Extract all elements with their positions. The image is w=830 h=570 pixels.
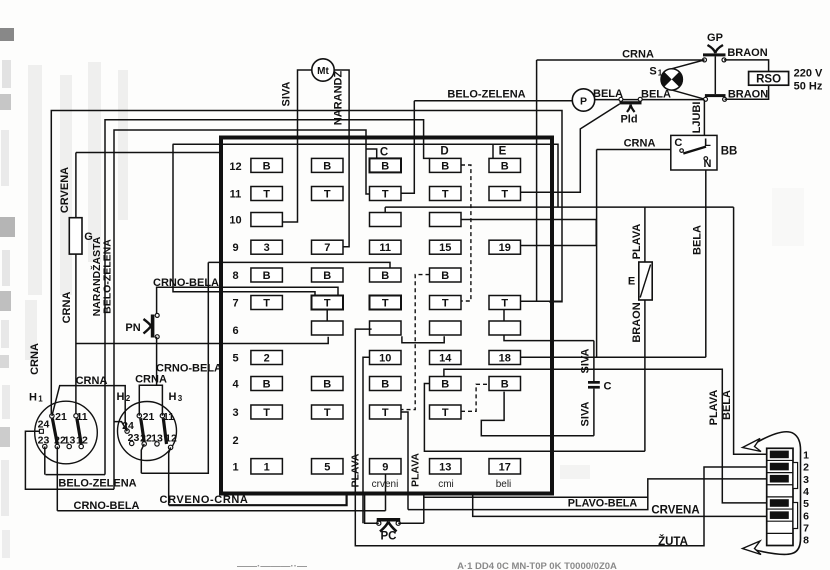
svg-text:T: T [324, 298, 331, 310]
svg-text:T: T [382, 407, 389, 419]
svg-text:T: T [501, 298, 508, 310]
svg-text:2: 2 [232, 435, 238, 447]
svg-text:C: C [380, 147, 388, 159]
svg-text:H: H [29, 392, 37, 404]
svg-text:23: 23 [128, 432, 140, 444]
svg-text:PLAVA: PLAVA [409, 453, 421, 487]
svg-text:CRNA: CRNA [622, 49, 654, 61]
svg-text:A·1 DD4 0C MN-T0P 0K T0000/0Z0: A·1 DD4 0C MN-T0P 0K T0000/0Z0A [457, 561, 617, 570]
svg-text:6: 6 [232, 325, 238, 337]
svg-text:21: 21 [143, 411, 155, 423]
svg-text:B: B [323, 160, 331, 172]
svg-text:PC: PC [381, 531, 397, 543]
svg-text:B: B [381, 379, 389, 391]
svg-text:T: T [324, 407, 331, 419]
svg-text:LJUBI: LJUBI [691, 102, 703, 134]
svg-text:T: T [442, 189, 449, 201]
svg-text:BELO-ZELENA: BELO-ZELENA [58, 478, 136, 490]
svg-text:SIVA: SIVA [580, 349, 592, 374]
svg-text:T: T [382, 298, 389, 310]
svg-text:3: 3 [232, 407, 238, 419]
svg-text:BELA: BELA [692, 225, 704, 255]
svg-text:ŽUTA: ŽUTA [658, 535, 688, 548]
svg-text:14: 14 [439, 353, 452, 365]
svg-text:B: B [323, 270, 331, 282]
svg-text:PLAVO-BELA: PLAVO-BELA [568, 498, 638, 510]
svg-text:T: T [382, 189, 389, 201]
svg-text:PLAVA: PLAVA [708, 390, 720, 426]
svg-text:13: 13 [439, 461, 451, 473]
svg-text:B: B [323, 379, 331, 391]
svg-text:T: T [501, 189, 508, 201]
svg-text:24: 24 [38, 419, 50, 431]
svg-text:CRVENO-CRNA: CRVENO-CRNA [160, 494, 249, 506]
svg-text:RSO: RSO [756, 74, 781, 86]
svg-text:Pld: Pld [620, 114, 637, 126]
svg-text:CRNA: CRNA [61, 292, 73, 324]
svg-text:T: T [263, 189, 270, 201]
svg-text:12: 12 [229, 161, 241, 173]
svg-text:9: 9 [382, 461, 388, 473]
svg-text:23: 23 [38, 434, 50, 446]
svg-text:1: 1 [38, 395, 43, 404]
svg-text:1: 1 [803, 450, 809, 462]
svg-text:10: 10 [229, 215, 241, 227]
svg-text:T: T [263, 298, 270, 310]
svg-text:BELO-ZELENA: BELO-ZELENA [447, 89, 525, 101]
svg-text:2: 2 [803, 462, 809, 474]
svg-text:GP: GP [707, 32, 723, 44]
svg-text:BRAON: BRAON [727, 47, 767, 59]
svg-text:CRNO-BELA: CRNO-BELA [153, 277, 219, 289]
svg-text:1: 1 [264, 461, 270, 473]
svg-text:cmi: cmi [438, 479, 454, 490]
svg-text:――·―――··―: ――·―――··― [237, 561, 307, 570]
svg-text:11: 11 [379, 242, 391, 254]
svg-text:4: 4 [232, 379, 239, 391]
svg-text:BELA: BELA [593, 88, 623, 100]
svg-text:12: 12 [76, 434, 88, 446]
svg-text:C: C [604, 381, 612, 393]
svg-text:6: 6 [803, 510, 809, 522]
svg-text:T: T [263, 407, 270, 419]
svg-text:5: 5 [803, 498, 809, 510]
svg-text:3: 3 [178, 394, 183, 403]
svg-text:15: 15 [439, 242, 451, 254]
svg-text:19: 19 [499, 242, 511, 254]
svg-text:C: C [674, 137, 682, 149]
svg-text:CRVENA: CRVENA [59, 167, 71, 213]
svg-text:9: 9 [232, 242, 238, 254]
svg-text:7: 7 [324, 242, 330, 254]
svg-text:B: B [263, 270, 271, 282]
svg-text:D: D [440, 146, 448, 158]
svg-text:B: B [381, 270, 389, 282]
svg-text:13: 13 [151, 433, 163, 445]
svg-text:SIVA: SIVA [281, 82, 293, 107]
svg-text:BB: BB [721, 146, 738, 158]
svg-text:SIVA: SIVA [580, 402, 592, 427]
svg-text:Mt: Mt [317, 66, 329, 77]
svg-text:CRNA: CRNA [135, 374, 167, 386]
svg-text:BELO-ZELENA: BELO-ZELENA [102, 239, 114, 314]
svg-text:17: 17 [499, 461, 511, 473]
svg-text:5: 5 [324, 461, 330, 473]
svg-text:11: 11 [230, 189, 242, 201]
svg-text:B: B [263, 160, 271, 172]
svg-text:B: B [381, 160, 389, 172]
svg-text:8: 8 [803, 535, 809, 547]
svg-text:CRNO-BELA: CRNO-BELA [74, 500, 140, 512]
svg-text:E: E [499, 146, 507, 158]
svg-text:E: E [628, 276, 635, 288]
svg-text:B: B [501, 160, 509, 172]
svg-text:8: 8 [232, 270, 238, 282]
svg-text:T: T [442, 298, 449, 310]
svg-text:BRAON: BRAON [631, 302, 643, 342]
svg-text:PLAVA: PLAVA [349, 453, 361, 487]
svg-text:PN: PN [125, 322, 140, 334]
svg-text:13: 13 [64, 434, 76, 446]
svg-text:S: S [649, 66, 656, 78]
svg-text:11: 11 [76, 411, 87, 423]
svg-text:H: H [117, 391, 125, 403]
svg-text:B: B [441, 160, 449, 172]
svg-text:B: B [501, 379, 509, 391]
svg-text:BELA: BELA [721, 390, 733, 420]
svg-text:7: 7 [232, 298, 238, 310]
svg-text:21: 21 [55, 411, 67, 423]
svg-text:PLAVA: PLAVA [631, 224, 643, 260]
svg-text:CRNA: CRNA [624, 138, 656, 150]
svg-text:NARANDŽ: NARANDŽ [332, 71, 345, 126]
svg-text:beli: beli [496, 479, 512, 490]
svg-text:4: 4 [803, 486, 809, 498]
svg-text:BELA: BELA [641, 89, 671, 101]
svg-text:3: 3 [264, 242, 270, 254]
svg-text:T: T [442, 407, 449, 419]
svg-text:CRNA: CRNA [29, 343, 41, 375]
svg-text:2: 2 [264, 353, 270, 365]
svg-text:H: H [169, 391, 177, 403]
svg-text:3: 3 [803, 474, 809, 486]
svg-text:B: B [263, 379, 271, 391]
svg-text:50 Hz: 50 Hz [794, 81, 823, 93]
svg-text:7: 7 [803, 522, 809, 534]
svg-text:crveni: crveni [372, 479, 399, 490]
svg-text:11: 11 [163, 411, 174, 423]
svg-text:220 V: 220 V [794, 68, 823, 80]
svg-text:CRVENA: CRVENA [651, 505, 699, 517]
svg-text:18: 18 [499, 353, 511, 365]
svg-text:2: 2 [126, 394, 131, 403]
svg-text:B: B [441, 379, 449, 391]
svg-text:10: 10 [379, 353, 391, 365]
svg-text:5: 5 [232, 353, 238, 365]
svg-text:B: B [441, 270, 449, 282]
svg-text:1: 1 [232, 461, 238, 473]
svg-text:T: T [324, 189, 331, 201]
svg-text:P: P [580, 95, 587, 107]
svg-text:12: 12 [165, 433, 177, 445]
